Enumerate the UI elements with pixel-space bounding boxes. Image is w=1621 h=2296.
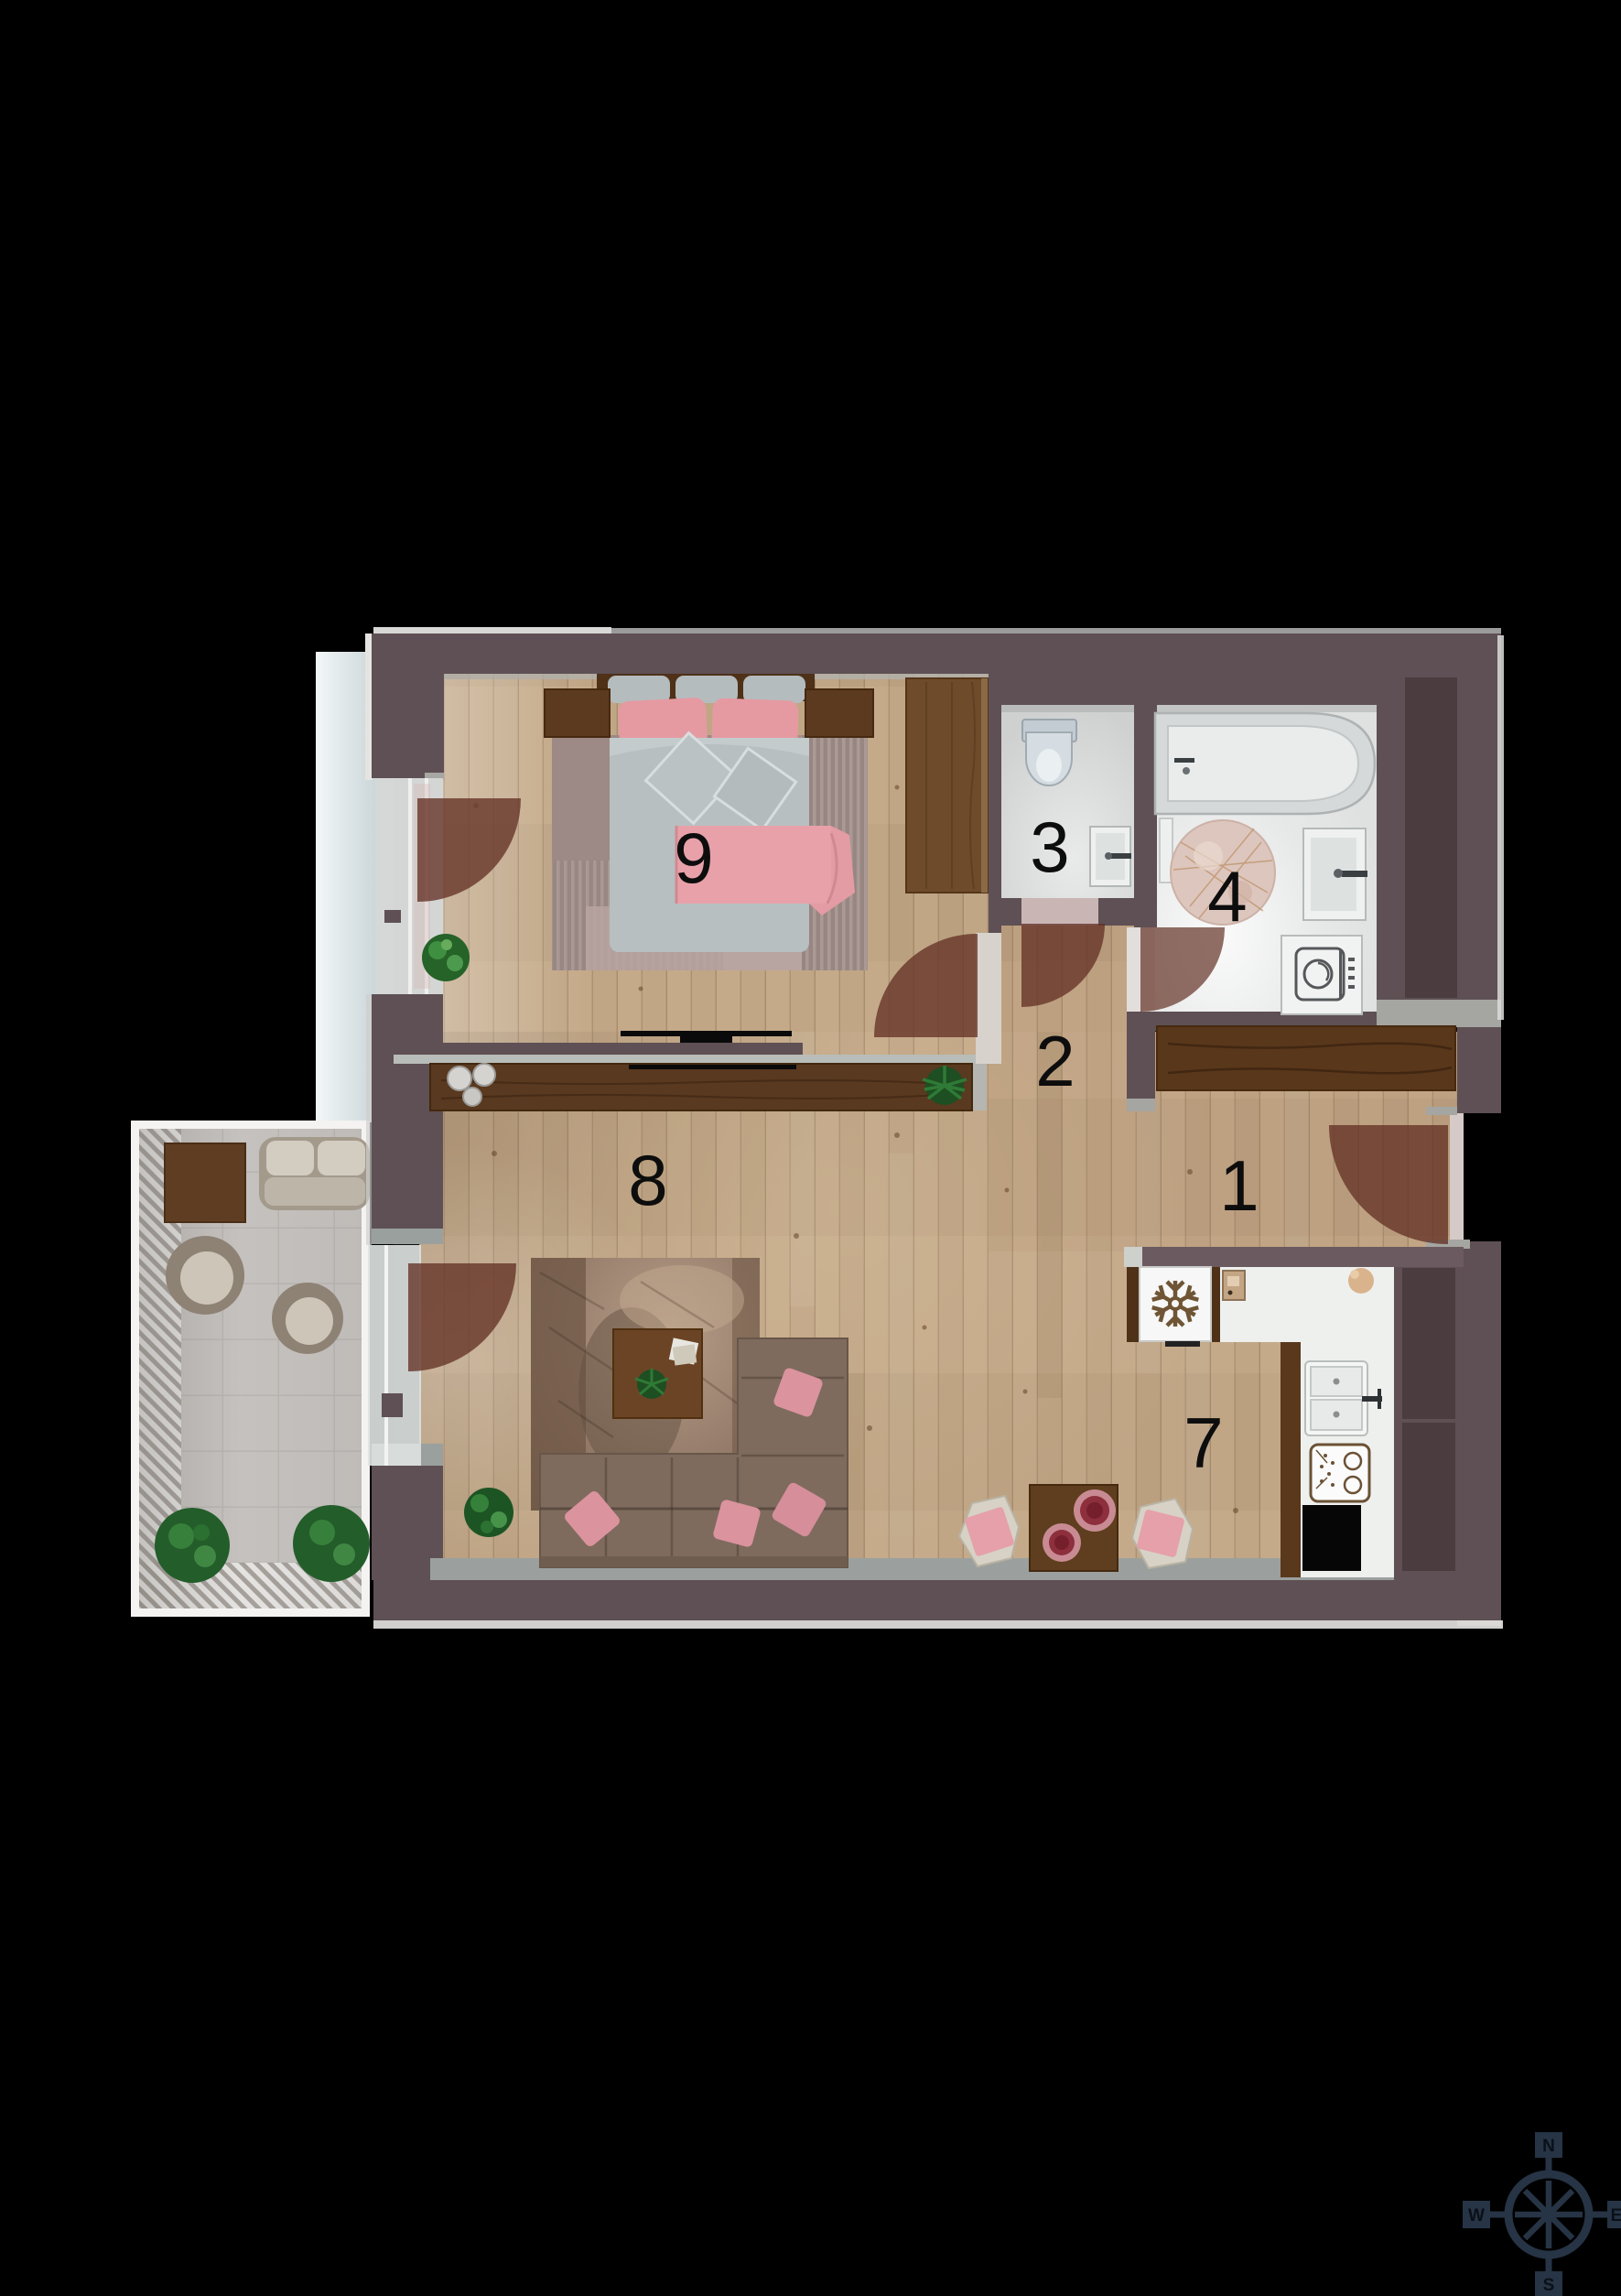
svg-text:4: 4 (1207, 856, 1247, 937)
svg-text:9: 9 (674, 818, 713, 898)
svg-text:E: E (1611, 2206, 1621, 2226)
svg-text:2: 2 (1035, 1021, 1075, 1101)
svg-text:W: W (1468, 2206, 1485, 2226)
svg-text:3: 3 (1030, 807, 1069, 887)
svg-text:N: N (1542, 2137, 1555, 2156)
svg-text:7: 7 (1183, 1403, 1223, 1483)
svg-text:S: S (1543, 2276, 1555, 2295)
svg-text:8: 8 (628, 1140, 667, 1220)
svg-text:1: 1 (1219, 1145, 1259, 1226)
